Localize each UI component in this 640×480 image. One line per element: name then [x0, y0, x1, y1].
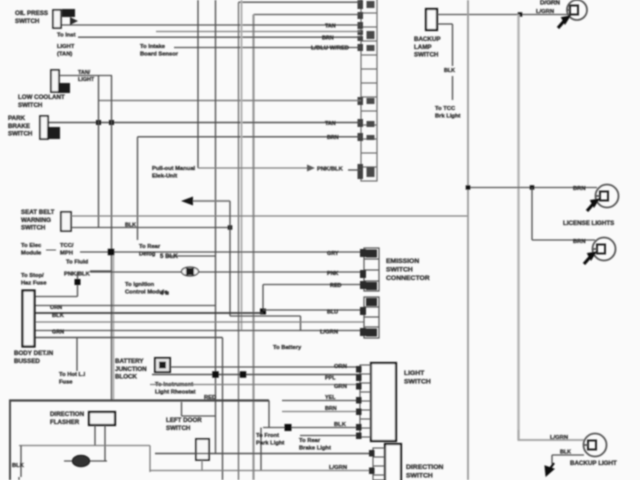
- svg-text:BRN: BRN: [325, 406, 337, 412]
- svg-text:(TAN): (TAN): [57, 51, 72, 57]
- svg-text:EMISSION: EMISSION: [386, 258, 419, 265]
- svg-text:To Rear: To Rear: [299, 438, 321, 444]
- svg-text:BACKUP LIGHT: BACKUP LIGHT: [570, 460, 617, 467]
- svg-text:Light Rheostat: Light Rheostat: [155, 389, 196, 395]
- svg-text:BRN: BRN: [327, 135, 339, 141]
- svg-text:CONNECTOR: CONNECTOR: [386, 275, 430, 282]
- svg-text:SEAT BELT: SEAT BELT: [21, 209, 55, 216]
- svg-text:BATTERY: BATTERY: [115, 358, 144, 365]
- svg-text:5 BLK: 5 BLK: [160, 253, 178, 260]
- svg-text:TAN: TAN: [325, 121, 336, 127]
- svg-text:LAMP: LAMP: [414, 44, 432, 51]
- svg-text:SWITCH: SWITCH: [8, 131, 33, 138]
- svg-text:BODY DET.IN: BODY DET.IN: [14, 350, 54, 357]
- svg-text:To Intake: To Intake: [140, 44, 166, 50]
- svg-text:BLOCK: BLOCK: [115, 374, 138, 381]
- svg-text:OIL PRESS: OIL PRESS: [15, 10, 48, 17]
- svg-text:PARK: PARK: [8, 115, 26, 122]
- svg-text:Elek-Unit: Elek-Unit: [152, 173, 177, 179]
- svg-text:BRN: BRN: [573, 186, 586, 192]
- svg-text:Control Module: Control Module: [125, 289, 168, 295]
- svg-text:Haz Fuse: Haz Fuse: [21, 280, 47, 286]
- svg-text:BLK: BLK: [125, 223, 136, 229]
- svg-text:Park Light: Park Light: [256, 440, 284, 446]
- svg-text:MPH: MPH: [60, 250, 73, 256]
- svg-text:Brk Light: Brk Light: [435, 113, 461, 119]
- svg-text:To Hot L.I: To Hot L.I: [59, 372, 86, 378]
- svg-text:BLK: BLK: [12, 463, 25, 469]
- svg-text:Brake Light: Brake Light: [299, 445, 331, 451]
- svg-text:Board Sensor: Board Sensor: [140, 51, 179, 57]
- svg-text:GRY: GRY: [327, 251, 339, 257]
- svg-text:DIRECTION: DIRECTION: [50, 411, 85, 418]
- svg-text:To Fluid: To Fluid: [66, 260, 89, 266]
- svg-text:L/BLU W/RED: L/BLU W/RED: [311, 46, 349, 52]
- svg-text:GRN: GRN: [334, 384, 347, 390]
- svg-text:SWITCH: SWITCH: [406, 472, 433, 479]
- svg-text:YEL: YEL: [325, 395, 336, 401]
- svg-text:ORN: ORN: [334, 364, 347, 370]
- svg-text:L/GRN: L/GRN: [550, 435, 568, 441]
- svg-text:SWITCH: SWITCH: [386, 266, 413, 273]
- svg-text:To Elec: To Elec: [21, 243, 42, 249]
- svg-text:BACKUP: BACKUP: [414, 36, 440, 43]
- svg-text:BLK: BLK: [444, 68, 455, 74]
- svg-text:BLK: BLK: [560, 450, 571, 456]
- svg-text:L/GRN: L/GRN: [320, 330, 338, 336]
- svg-text:JUNCTION: JUNCTION: [115, 366, 147, 373]
- svg-text:RED: RED: [330, 283, 341, 289]
- svg-text:LICENSE LIGHTS: LICENSE LIGHTS: [563, 220, 614, 227]
- svg-text:SWITCH: SWITCH: [414, 52, 439, 59]
- svg-text:To Ignition: To Ignition: [125, 282, 155, 288]
- svg-text:L/GRN: L/GRN: [329, 465, 347, 471]
- svg-text:GRN: GRN: [52, 330, 64, 336]
- svg-text:To Battery: To Battery: [273, 345, 302, 351]
- svg-text:BLU: BLU: [327, 310, 338, 316]
- svg-text:WARNING: WARNING: [21, 217, 51, 224]
- svg-text:TCC/: TCC/: [60, 243, 74, 249]
- svg-text:To Stop/: To Stop/: [21, 273, 44, 279]
- svg-text:DIRECTION: DIRECTION: [406, 464, 443, 471]
- svg-text:LOW COOLANT: LOW COOLANT: [18, 94, 65, 101]
- svg-text:BLK: BLK: [334, 422, 347, 428]
- svg-text:To Front: To Front: [256, 433, 279, 439]
- svg-text:Module: Module: [21, 250, 42, 256]
- svg-text:BRAKE: BRAKE: [8, 123, 30, 130]
- svg-text:SWITCH: SWITCH: [21, 225, 46, 232]
- svg-text:Pull-out Manual: Pull-out Manual: [152, 166, 196, 172]
- svg-text:To TCC: To TCC: [435, 106, 456, 112]
- svg-text:SWITCH: SWITCH: [166, 425, 191, 432]
- svg-text:LEFT DOOR: LEFT DOOR: [166, 417, 202, 424]
- svg-text:BLK: BLK: [52, 313, 65, 319]
- svg-text:SWITCH: SWITCH: [15, 18, 40, 25]
- svg-text:LIGHT: LIGHT: [404, 370, 425, 377]
- svg-text:PPL: PPL: [325, 376, 336, 382]
- svg-text:LIGHT: LIGHT: [78, 77, 95, 83]
- svg-text:L/GRN: L/GRN: [536, 9, 554, 15]
- svg-text:Fuse: Fuse: [59, 379, 73, 385]
- svg-text:PNK/BLK: PNK/BLK: [317, 167, 344, 173]
- svg-text:BRN: BRN: [322, 36, 334, 42]
- svg-text:BRN: BRN: [573, 239, 586, 245]
- svg-text:LIGHT: LIGHT: [57, 44, 75, 50]
- svg-text:To Inst: To Inst: [57, 33, 76, 39]
- svg-text:BUSSED: BUSSED: [14, 358, 40, 365]
- svg-text:TAN: TAN: [325, 24, 336, 30]
- svg-text:SWITCH: SWITCH: [404, 378, 431, 385]
- svg-text:SWITCH: SWITCH: [18, 102, 43, 109]
- svg-text:PNK: PNK: [327, 271, 338, 277]
- svg-text:D/GRN: D/GRN: [540, 0, 560, 7]
- svg-text:FLASHER: FLASHER: [50, 419, 80, 426]
- svg-text:To Rear: To Rear: [139, 244, 161, 250]
